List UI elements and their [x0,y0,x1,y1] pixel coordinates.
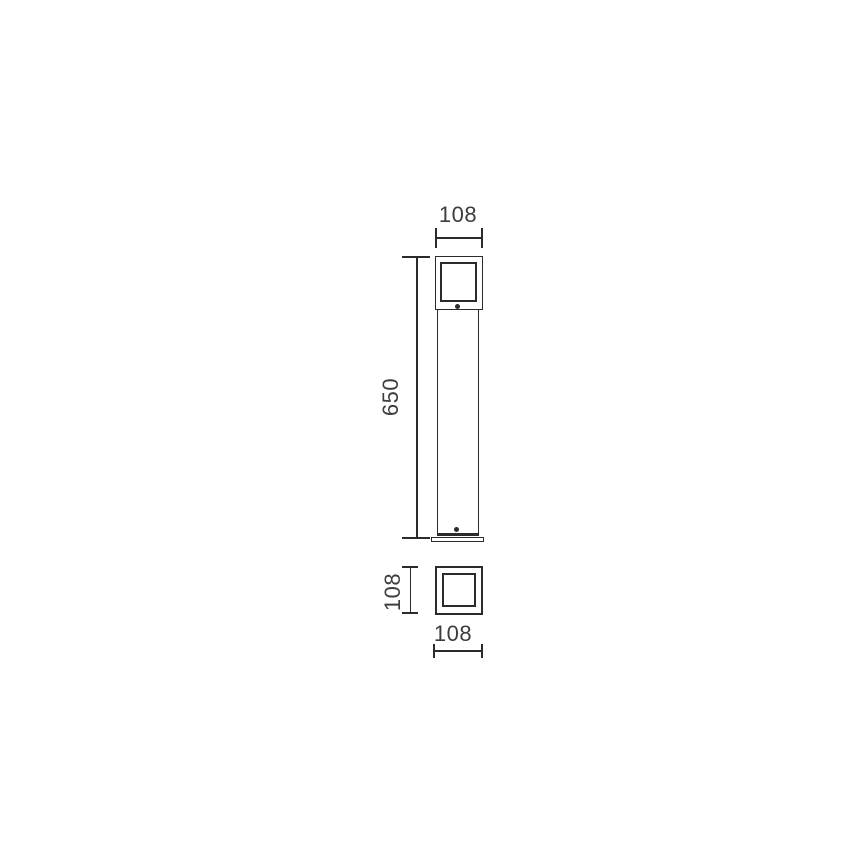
plan-width-dimension-line [434,650,482,652]
head-screw-dot [455,304,460,309]
plan-side-dimension-line [410,567,412,613]
plan-side-dimension-label: 108 [382,569,404,615]
front-width-dimension-line [436,237,482,239]
body-bottom-screw-dot [454,527,459,532]
front-height-dimension-line [416,257,418,538]
base-plate-outline [431,537,484,542]
plan-side-dimension-tick-bottom [402,612,418,614]
front-height-dimension-tick-bottom [402,537,430,539]
front-height-dimension-tick-top [402,256,430,258]
plan-width-dimension-tick-left [433,644,435,658]
front-width-dimension-tick-right [481,228,483,248]
plan-side-dimension-tick-top [402,566,418,568]
front-width-dimension-label: 108 [435,204,481,226]
plan-width-dimension-label: 108 [430,623,476,645]
bollard-lamp-window [440,262,477,302]
plan-view-inner-square [442,573,476,607]
technical-drawing-canvas: 108 650 108 108 [0,0,868,868]
front-width-dimension-tick-left [435,228,437,248]
plan-width-dimension-tick-right [481,644,483,658]
bollard-body-outline [437,310,479,536]
front-height-dimension-label: 650 [380,367,402,427]
